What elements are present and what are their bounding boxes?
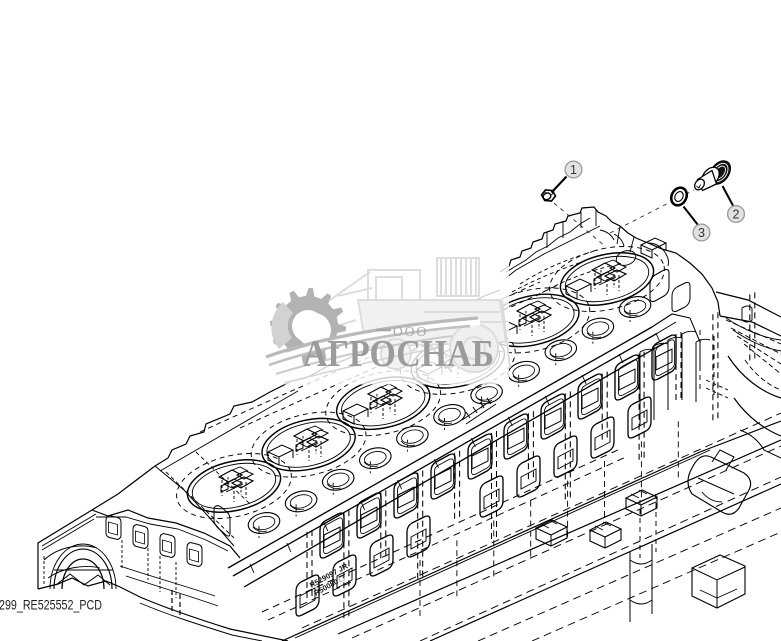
svg-text:2: 2 (733, 208, 740, 222)
svg-text:АГРОСНАБ: АГРОСНАБ (303, 333, 494, 375)
svg-text:1: 1 (570, 163, 577, 177)
svg-text:3: 3 (698, 226, 705, 240)
svg-text:299_RE525552_PCD: 299_RE525552_PCD (0, 598, 102, 613)
